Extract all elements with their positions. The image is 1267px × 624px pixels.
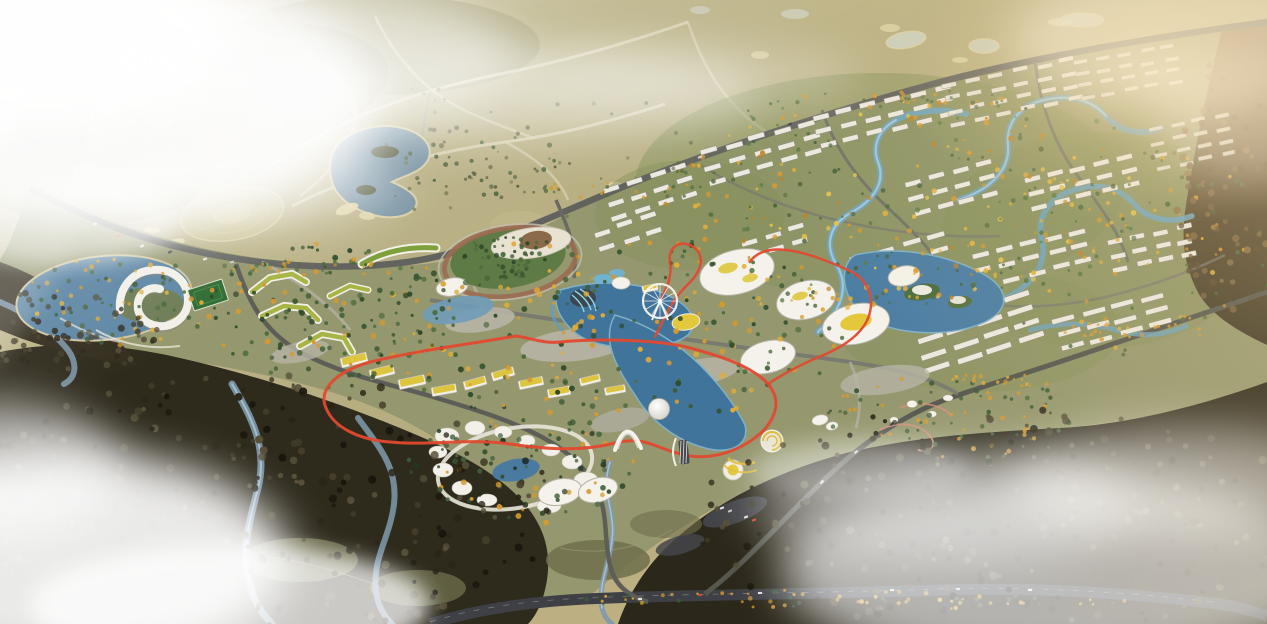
cool-haze (0, 0, 1267, 624)
aerial-rendering-stage (0, 0, 1267, 624)
masterplan-aerial-scene (0, 0, 1267, 624)
lighting-overlay-layer (0, 0, 1267, 624)
